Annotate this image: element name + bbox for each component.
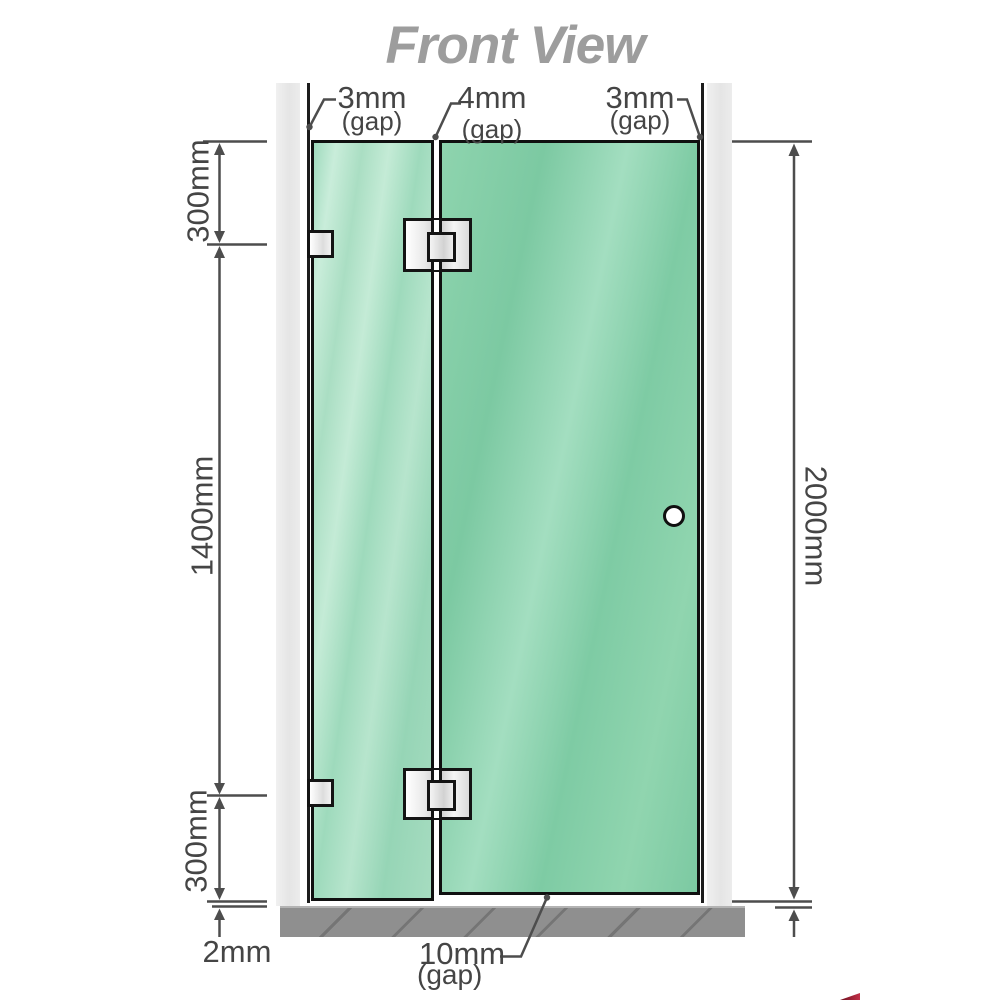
top-glass-hinge (403, 218, 472, 272)
hinge-tongue (427, 780, 456, 811)
left-wall-post (276, 83, 300, 906)
bottom-wall-bracket (307, 779, 334, 807)
dimension-label-left-middle: 1400mm (187, 456, 218, 577)
dimension-label-left-bottom: 300mm (181, 789, 212, 892)
door-handle-knob (663, 505, 685, 527)
bottom-glass-hinge (403, 768, 472, 820)
right-wall-channel-line (701, 83, 704, 903)
hinge-tongue (427, 232, 456, 262)
right-wall-post (707, 83, 732, 906)
gap-label-top-middle-note: (gap) (452, 116, 532, 142)
gap-label-bottom-note: (gap) (417, 961, 482, 989)
floor-base-bar (280, 906, 745, 937)
brand-mark (840, 993, 860, 1000)
dimension-label-left-top: 300mm (183, 139, 214, 242)
gap-label-top-left-note: (gap) (332, 108, 412, 134)
door-glass-panel (439, 140, 700, 895)
top-wall-bracket (307, 230, 334, 258)
dimension-label-right-overall: 2000mm (801, 466, 832, 587)
gap-label-top-right-note: (gap) (600, 107, 680, 133)
page-title: Front View (290, 16, 740, 76)
gap-label-top-middle-value: 4mm (452, 82, 532, 113)
diagram-canvas: Front View (0, 0, 1000, 1000)
floor-gap-label: 2mm (202, 936, 272, 967)
